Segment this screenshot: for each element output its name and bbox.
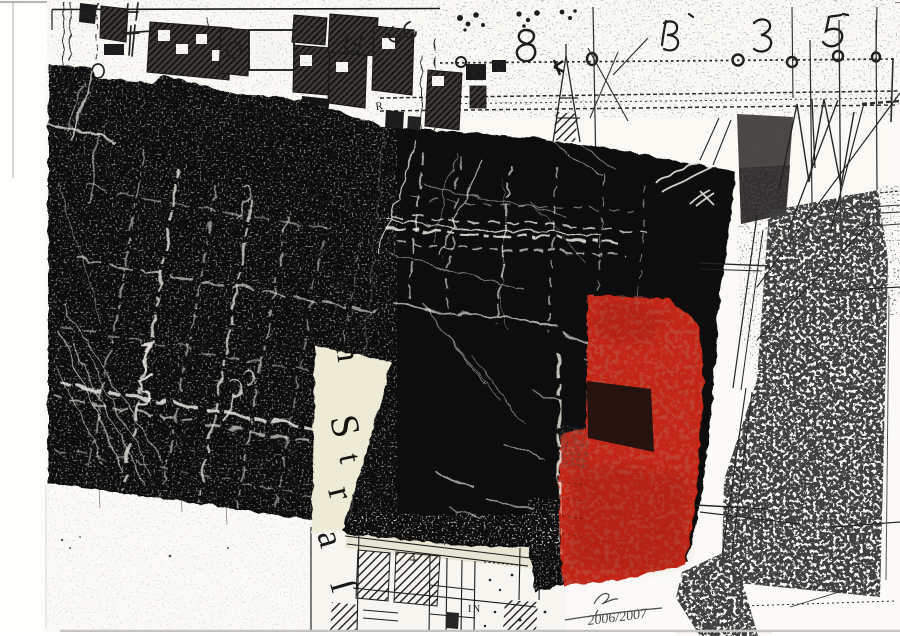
svg-text:IN: IN bbox=[468, 604, 482, 615]
